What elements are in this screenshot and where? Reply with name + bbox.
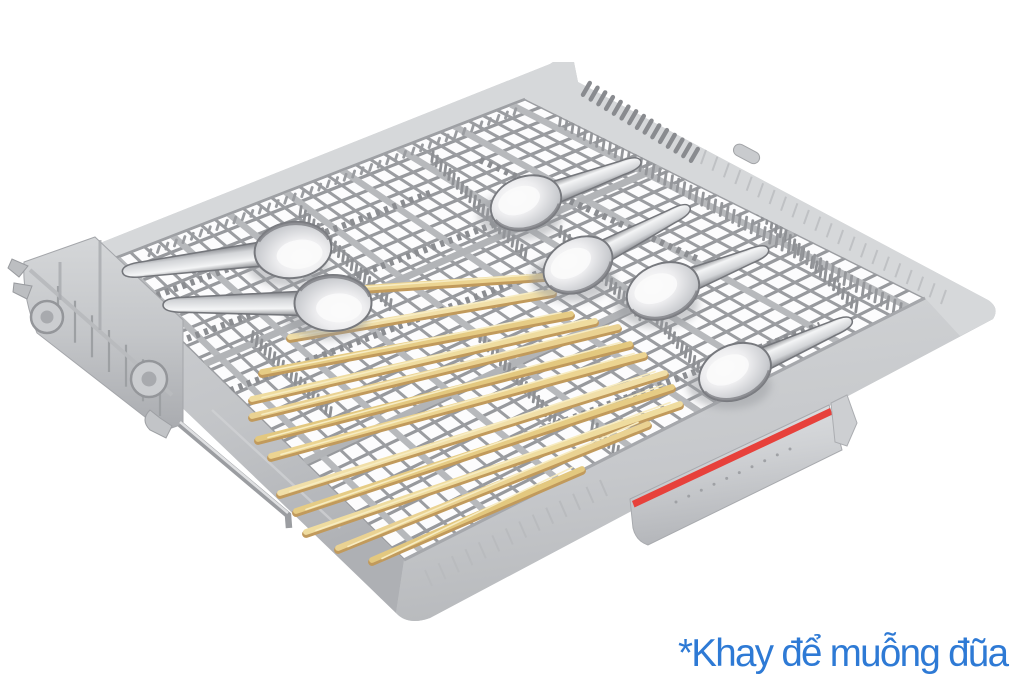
svg-text:*Khay để muỗng đũa: *Khay để muỗng đũa xyxy=(678,632,1010,675)
